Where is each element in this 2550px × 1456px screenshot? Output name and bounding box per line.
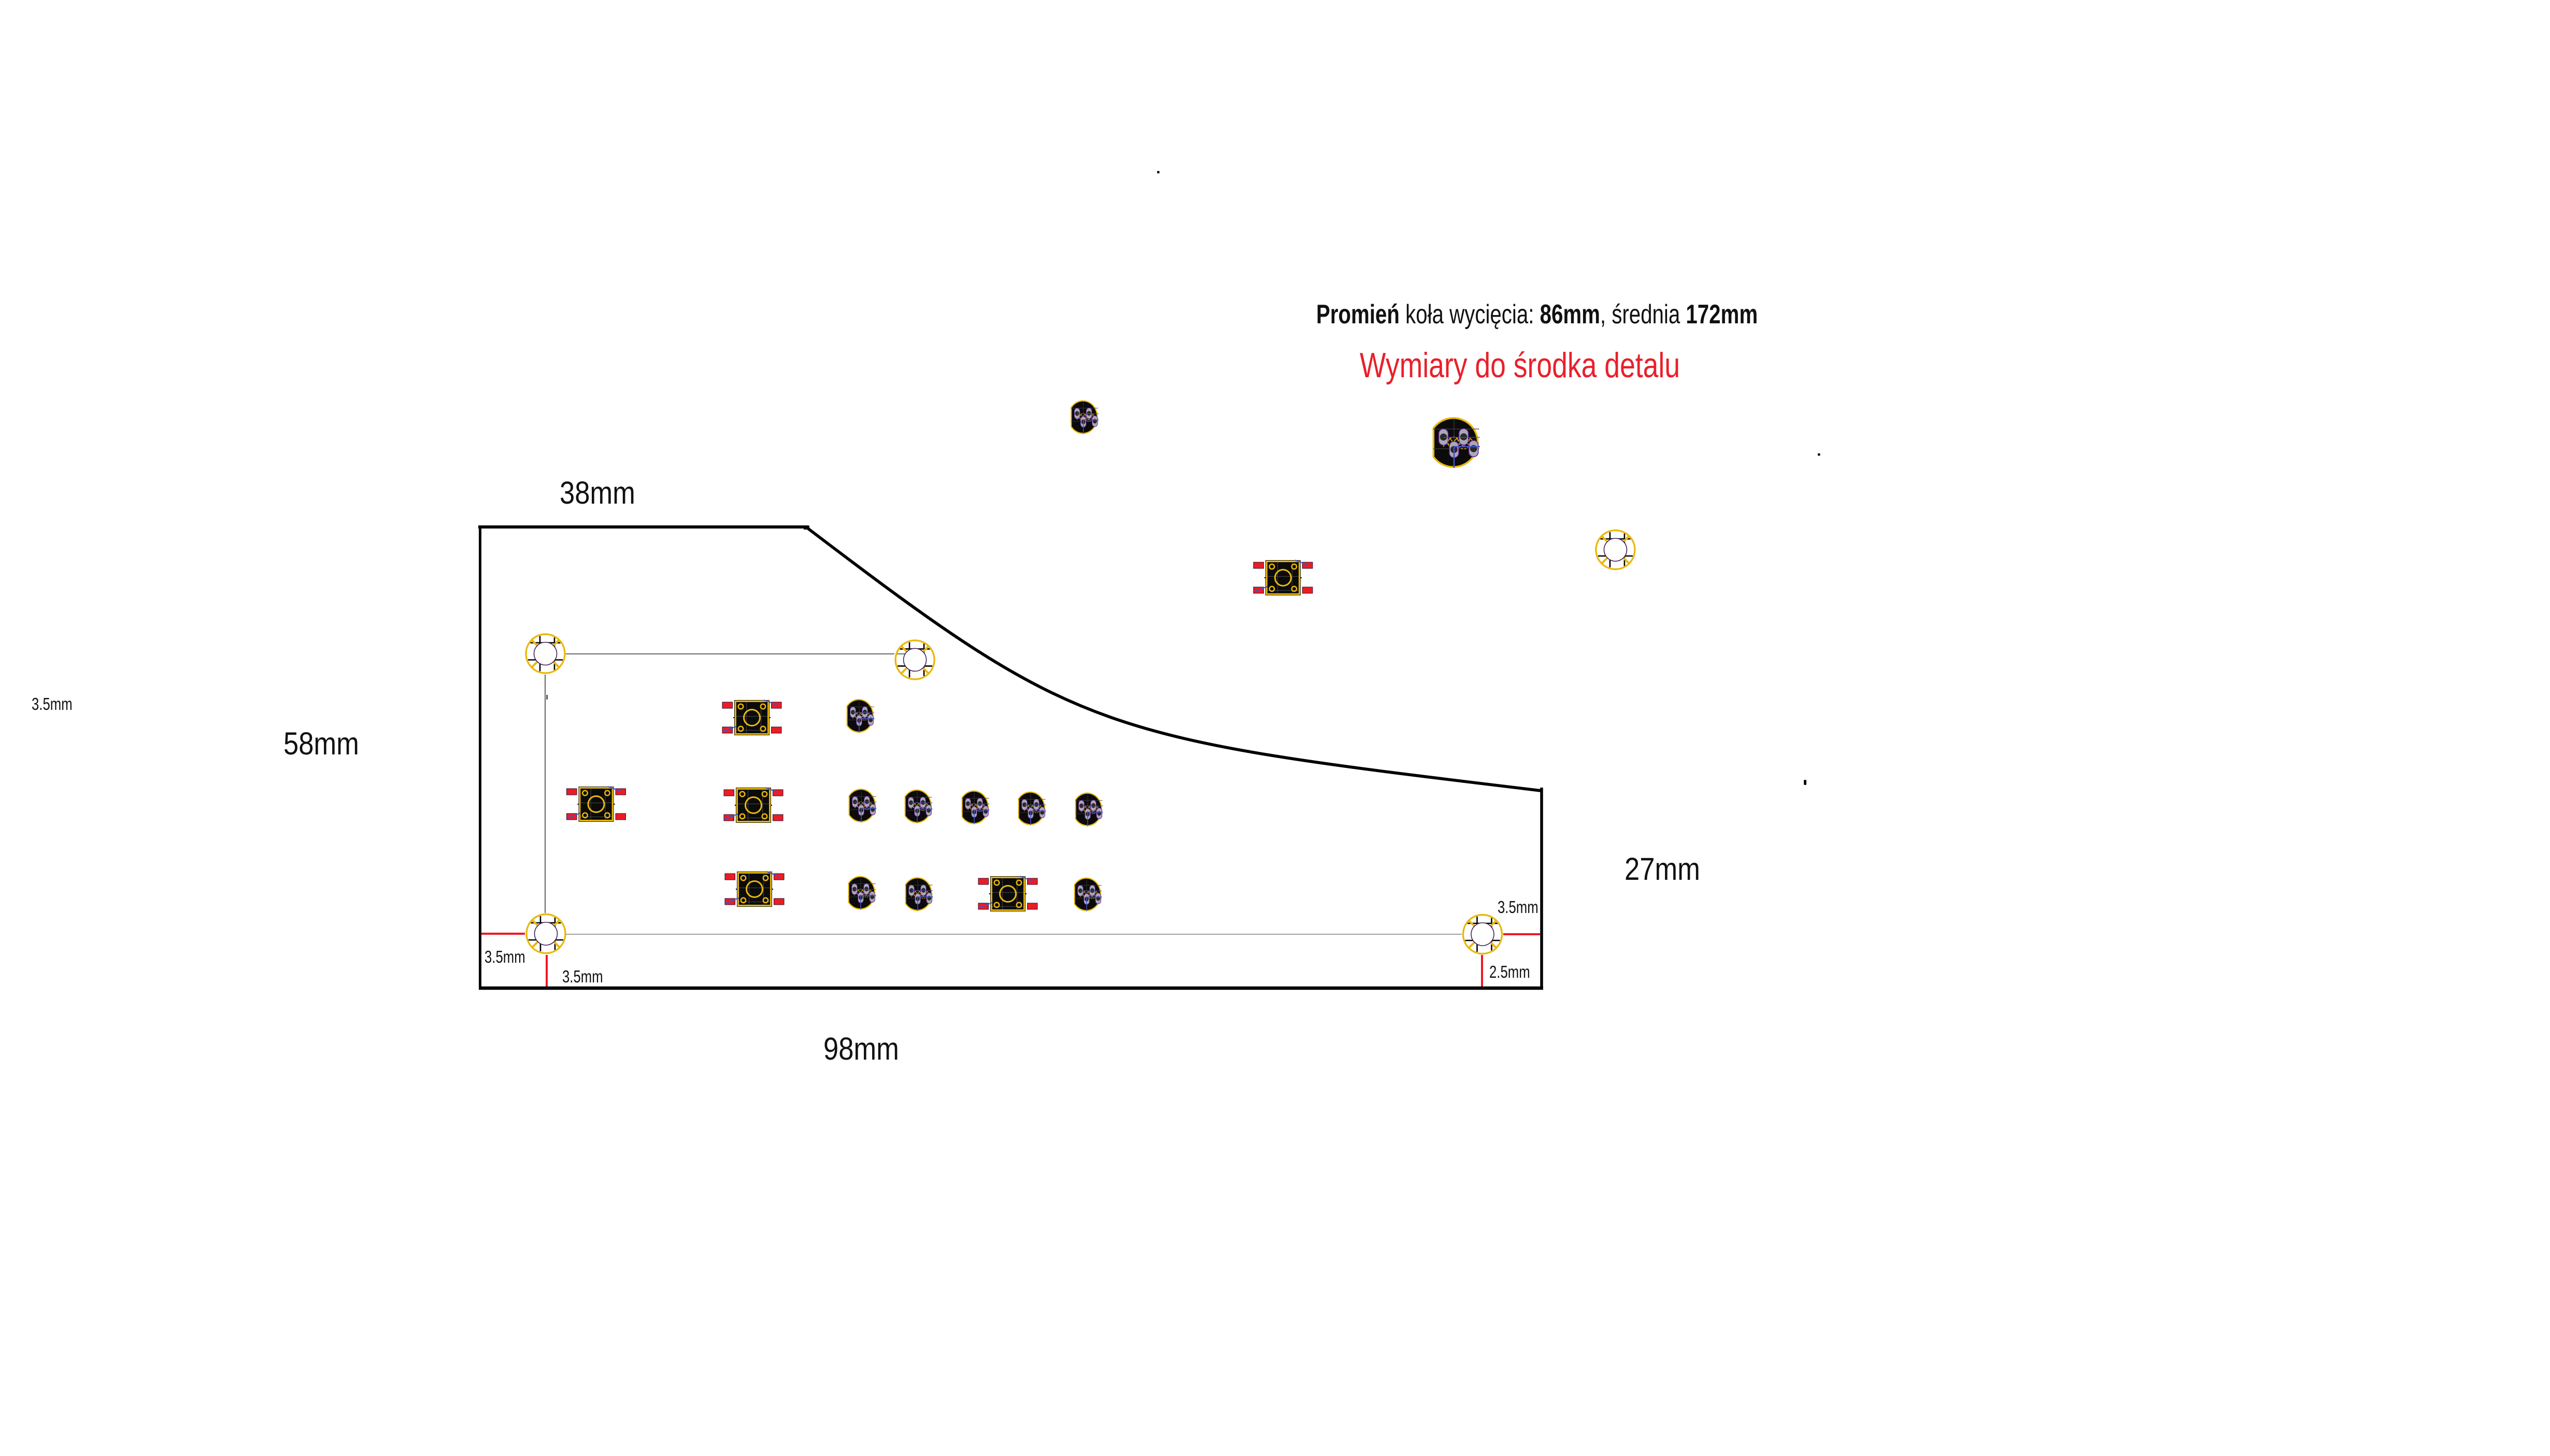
svg-text:Promień koła wycięcia: 86mm, ś: Promień koła wycięcia: 86mm, średnia 172…	[1316, 299, 1758, 329]
svg-text:2.5mm: 2.5mm	[1489, 963, 1530, 982]
svg-text:98mm: 98mm	[823, 1031, 899, 1067]
svg-text:38mm: 38mm	[560, 475, 635, 511]
svg-text:3.5mm: 3.5mm	[562, 967, 603, 987]
svg-text:Wymiary do środka detalu: Wymiary do środka detalu	[1360, 346, 1680, 385]
svg-text:27mm: 27mm	[1625, 851, 1700, 887]
svg-text:3.5mm: 3.5mm	[485, 948, 525, 967]
svg-text:3.5mm: 3.5mm	[1498, 898, 1538, 917]
svg-text:58mm: 58mm	[283, 726, 359, 762]
svg-text:3.5mm: 3.5mm	[32, 695, 73, 714]
